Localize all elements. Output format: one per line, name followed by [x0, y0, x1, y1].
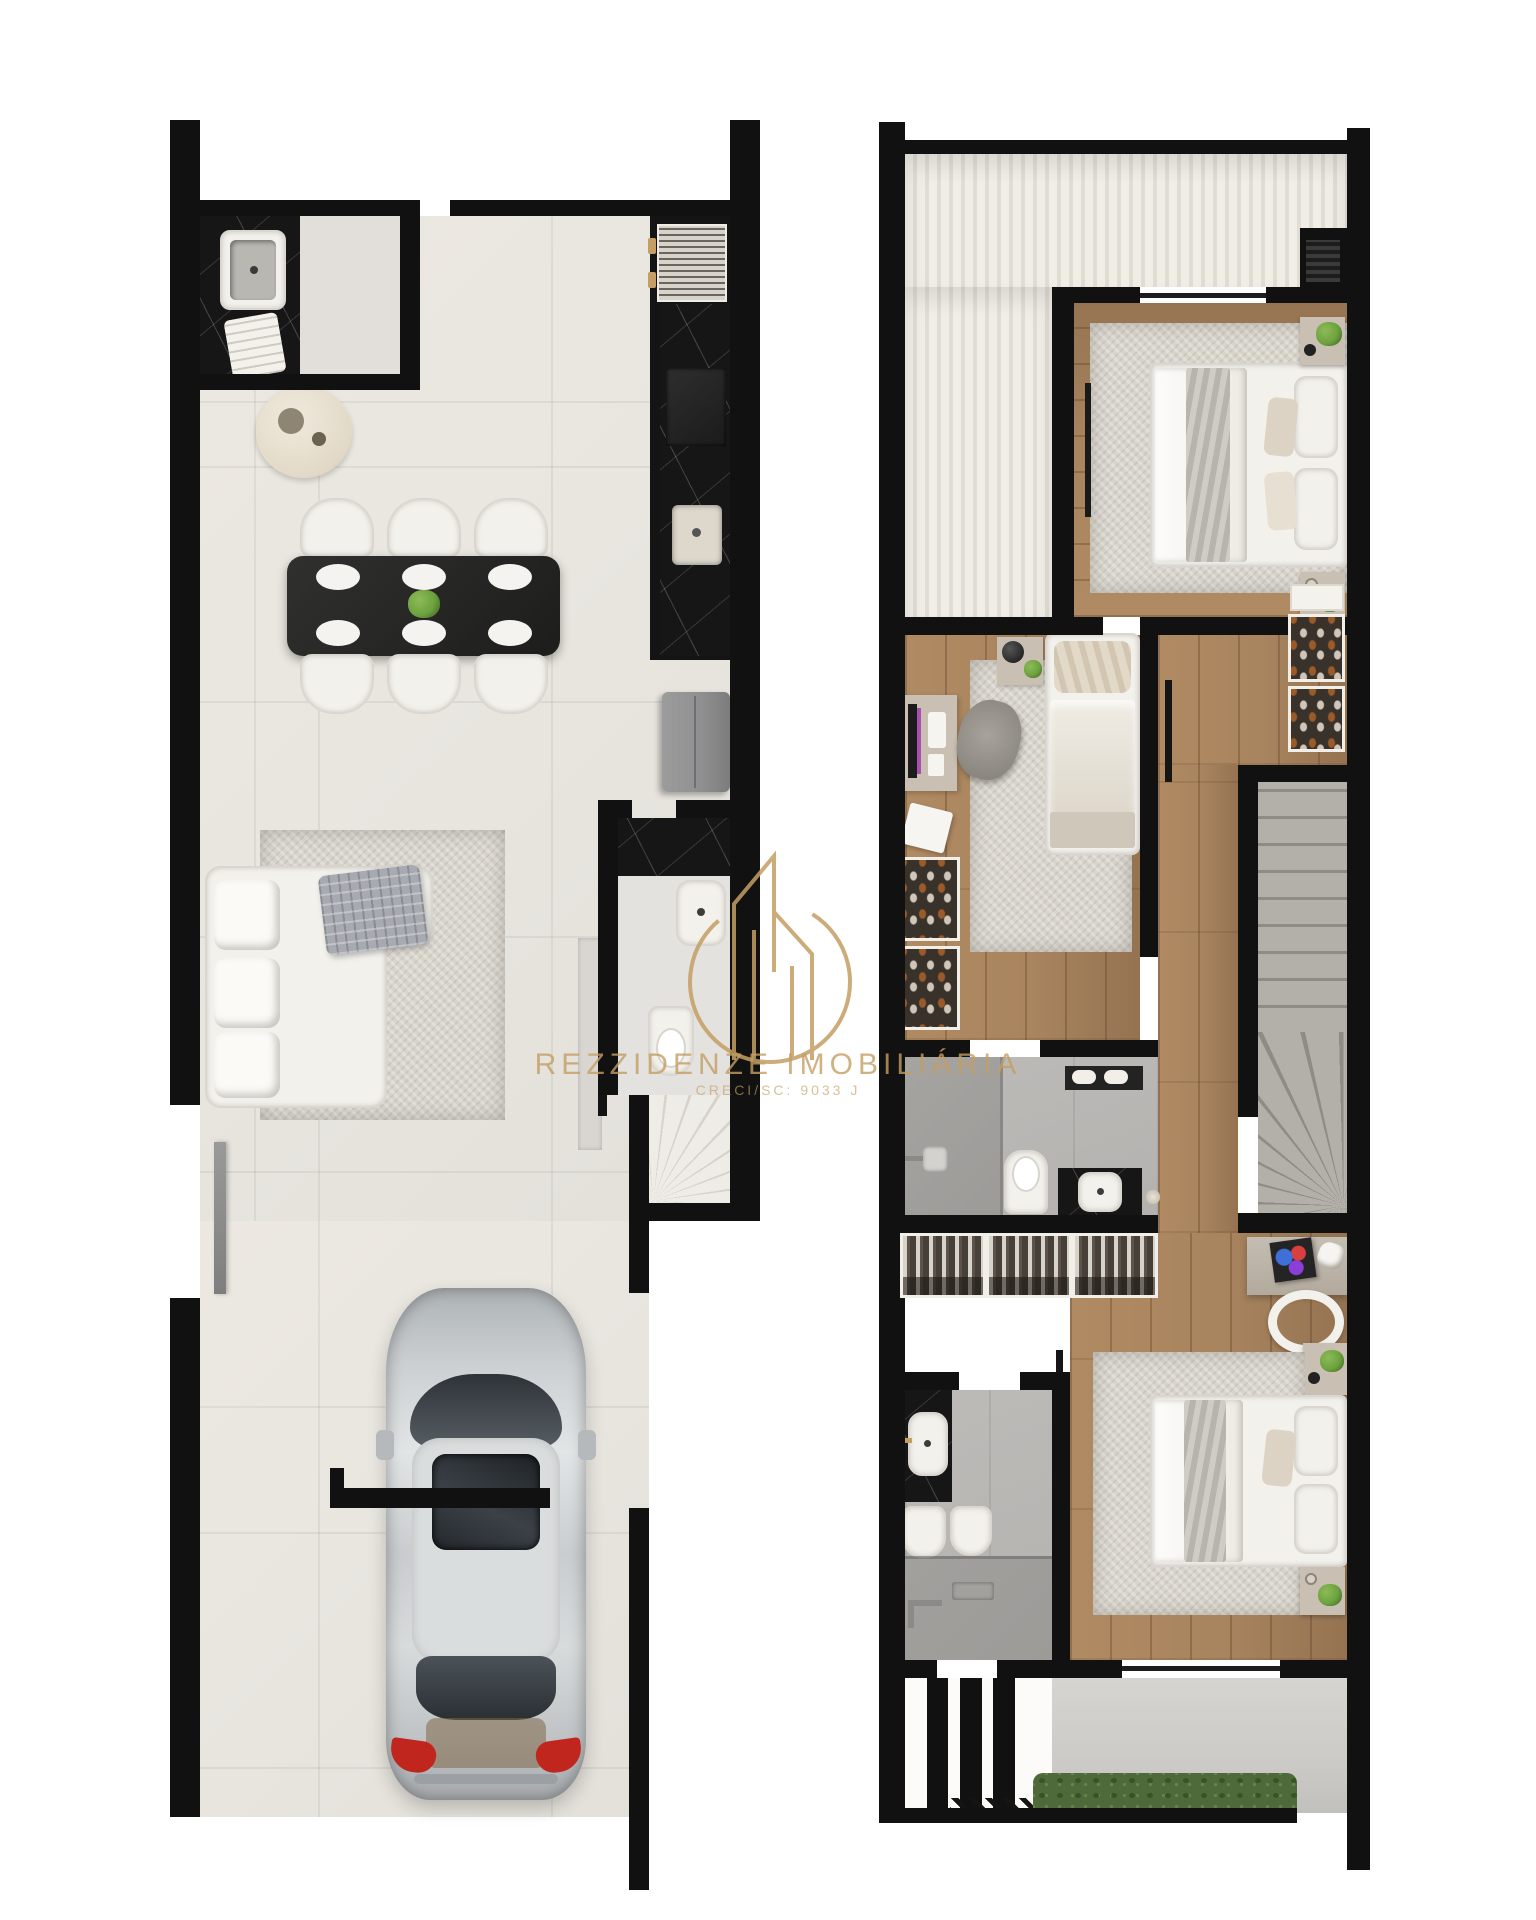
half-bath-sink-dot: [697, 908, 705, 916]
planter-dot: [312, 432, 326, 446]
master-top-wall-b: [1266, 287, 1347, 303]
toilet-seat: [656, 1028, 686, 1068]
bedroom3-plant: [1318, 1584, 1342, 1606]
kitchen-faucet: [692, 528, 701, 537]
fridge-seam: [694, 696, 696, 788]
monitor-screen-glow: [917, 708, 921, 774]
hall-tv: [1165, 680, 1172, 782]
single-bed-duvet: [1050, 700, 1135, 818]
shower2-drain: [952, 1582, 994, 1600]
u-bottom-wall2: [879, 1808, 1297, 1823]
balcony-glass-door: [1122, 1666, 1280, 1671]
side-table-plant: [1024, 660, 1042, 678]
half-bath-top-wall-b: [676, 800, 730, 818]
half-bath-counter: [618, 818, 730, 876]
garage-right-wall: [629, 1508, 649, 1890]
place-setting: [488, 564, 532, 590]
u-bottom-wall-a: [879, 1660, 937, 1678]
basin2-dot: [924, 1440, 931, 1447]
dining-chair: [474, 498, 548, 558]
bathroom-shower-zone: [905, 1057, 1000, 1215]
car-mirror: [578, 1430, 596, 1460]
bathroom2-top-wall-a: [879, 1372, 959, 1390]
grill-handle: [648, 272, 656, 288]
master-cushion: [1263, 397, 1299, 458]
master-terrace-glass-door: [1140, 293, 1266, 298]
monitor: [908, 704, 917, 778]
cooktop: [666, 368, 726, 446]
hall-shoe-closet: [1288, 686, 1345, 752]
car-mirror: [376, 1430, 394, 1460]
nook-candle: [1308, 1372, 1320, 1384]
wall-right: [730, 120, 760, 1221]
dining-chair: [387, 654, 461, 714]
wall-left-upper: [170, 120, 200, 1105]
place-setting: [316, 564, 360, 590]
privacy-slat: [960, 1678, 982, 1808]
half-bath-left-wall: [598, 800, 618, 1095]
single-bed-footer: [1050, 812, 1135, 848]
u-wall-left: [879, 122, 905, 1823]
u-wall-top: [905, 140, 1347, 154]
laundry-bottom-wall: [200, 374, 420, 390]
place-setting: [316, 620, 360, 646]
wardrobe-door-handle: [1085, 383, 1091, 517]
master-pillow: [1294, 376, 1338, 458]
toilet-seat: [1012, 1156, 1040, 1192]
linen-box: [1290, 584, 1344, 611]
hanging-clothes-rack: [900, 1233, 986, 1298]
kitchen-counter: [660, 304, 730, 656]
shower-arm: [905, 1156, 923, 1161]
sofa-cushion: [214, 880, 280, 950]
table-centerpiece-plant: [408, 590, 440, 618]
upper-stairs-straight: [1258, 782, 1347, 1032]
bedroom3-pillow: [1294, 1484, 1338, 1554]
privacy-slat: [993, 1678, 1015, 1808]
desk-paper: [928, 754, 944, 776]
laundry-right-wall: [400, 200, 420, 390]
bedroom3-throw: [1184, 1400, 1226, 1562]
silver-car: [386, 1288, 586, 1800]
hanging-clothes-rack: [1072, 1233, 1158, 1298]
master-throw: [1186, 368, 1230, 562]
bathroom-flower: [1146, 1190, 1160, 1204]
shoe-closet: [898, 857, 960, 941]
u-wall-right: [1347, 128, 1370, 1870]
master-pillow: [1294, 468, 1338, 550]
bathroom2-top-wall-b: [1020, 1372, 1052, 1390]
nook-plant: [1320, 1350, 1344, 1372]
nightstand-plant: [1316, 322, 1342, 346]
table-lamp: [1002, 641, 1024, 663]
bathroom-bottom-wall: [879, 1215, 1158, 1233]
keyboard: [928, 712, 946, 748]
shower2-glass: [905, 1556, 1052, 1559]
mid-wall-a: [905, 617, 1103, 635]
fridge: [662, 692, 730, 792]
laundry-faucet: [250, 266, 258, 274]
bathroom2-bidet: [950, 1506, 992, 1556]
dining-chair: [387, 498, 461, 558]
wall-top-a: [200, 200, 415, 216]
place-setting: [488, 620, 532, 646]
bedroom3-cushion: [1261, 1429, 1297, 1488]
hall-shoe-closet: [1288, 614, 1345, 682]
upper-stairs-winder: [1258, 1032, 1347, 1213]
garage-wall-b: [330, 1488, 550, 1508]
car-bumper: [414, 1774, 558, 1784]
stair-side-wall: [629, 1095, 649, 1293]
planter-pot: [278, 408, 304, 434]
shelf-towel: [1104, 1070, 1128, 1084]
hanging-clothes-rack: [986, 1233, 1072, 1298]
u-bottom-wall-c: [1280, 1660, 1347, 1678]
single-bed-pillow: [1054, 641, 1131, 693]
ac-unit: [1306, 240, 1340, 282]
stairwell-left-wall: [1238, 765, 1258, 1117]
nightstand-cup: [1304, 344, 1316, 356]
stairwell-bottom-wall: [1238, 1213, 1347, 1233]
wall-top-b: [450, 200, 730, 216]
shower2-bar-drop: [908, 1600, 914, 1628]
roof-terrace-band: [905, 154, 1347, 287]
shelf-towel: [1072, 1070, 1096, 1084]
round-planter: [256, 386, 352, 478]
hall-floor-b: [1158, 765, 1238, 1233]
bedroom2-bottom-wall-b: [1040, 1040, 1158, 1057]
u-bottom-wall-b: [997, 1660, 1122, 1678]
folded-towel: [223, 312, 287, 380]
master-cushion: [1264, 471, 1299, 531]
bathroom2-shower-zone: [905, 1556, 1052, 1660]
artwork: [1269, 1237, 1316, 1282]
grill-handle: [648, 238, 656, 254]
shower-head: [922, 1146, 948, 1172]
sofa-throw-blanket: [318, 864, 429, 956]
place-setting: [402, 564, 446, 590]
car-cargo: [426, 1718, 546, 1768]
sofa-cushion: [214, 958, 280, 1028]
bedroom2-right-wall: [1140, 617, 1158, 957]
wall-left-lower: [170, 1298, 200, 1817]
dining-chair: [474, 654, 548, 714]
basin-dot: [1097, 1188, 1104, 1195]
bathroom2-toilet: [902, 1506, 946, 1558]
place-setting: [402, 620, 446, 646]
vent-grill: [657, 224, 727, 302]
stair-bottom-wall: [649, 1203, 760, 1221]
privacy-slat: [927, 1678, 948, 1808]
dining-chair: [300, 498, 374, 558]
bedroom2-bottom-wall-a: [905, 1040, 970, 1057]
master-left-wall: [1052, 287, 1074, 617]
bedroom3-pillow: [1294, 1406, 1338, 1476]
bathroom2-right-wall: [1052, 1372, 1070, 1660]
bedroom3-candle: [1305, 1573, 1317, 1585]
side-entry-door: [214, 1142, 226, 1294]
shower-glass: [1000, 1057, 1003, 1215]
laundry-floor: [300, 216, 402, 374]
roof-terrace-column: [905, 287, 1052, 617]
sofa-cushion: [214, 1032, 280, 1098]
car-rear-window: [416, 1656, 556, 1720]
shoe-closet: [898, 946, 960, 1030]
master-top-wall-a: [1052, 287, 1140, 303]
dining-chair: [300, 654, 374, 714]
